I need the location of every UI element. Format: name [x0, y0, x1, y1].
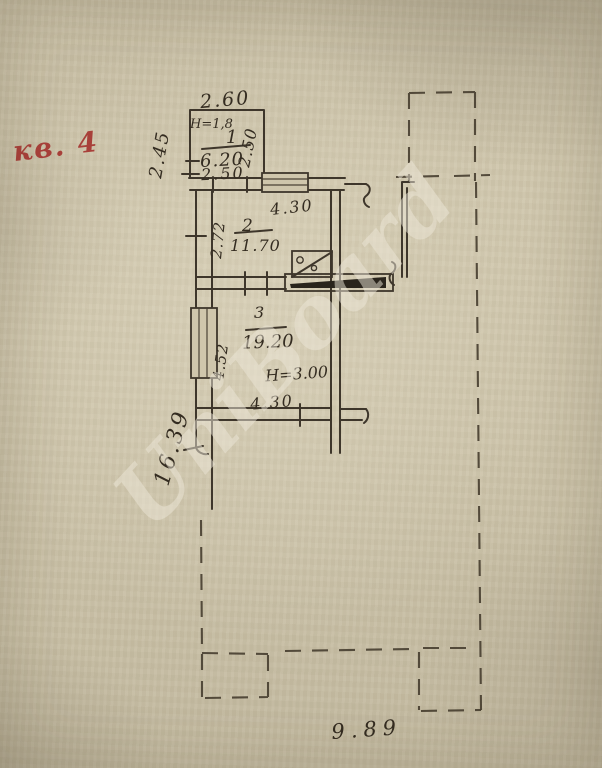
dim-room1-left: 2.45	[145, 129, 174, 181]
dim-bottom-total: 9.89	[331, 715, 403, 744]
dim-room1-bottom: 2.50	[200, 163, 246, 184]
room2-number: 2	[241, 216, 253, 236]
apartment-number-note: кв. 4	[11, 125, 101, 168]
dashed-left-vertical	[201, 520, 202, 654]
window-frame	[262, 173, 308, 192]
wall-bottom-hook	[364, 409, 368, 423]
dim-room2-top: 4.30	[268, 196, 314, 220]
dim-room1-top: 2.60	[198, 87, 251, 113]
room1-number: 1	[226, 127, 237, 148]
dashed-bottom-horizontal	[202, 648, 472, 654]
room2-area: 11.70	[230, 236, 281, 255]
wall-bottom-continuation	[340, 409, 366, 420]
doorway-jambs-rooms-2-3	[245, 272, 267, 295]
floor-plan-document: 2.60 2.45 H=1,8 1 6.20 2.50 2.50 4.30 2.…	[0, 0, 602, 768]
dim-room2-left: 2.72	[207, 220, 229, 260]
window-symbol-kitchen	[262, 173, 308, 192]
dashed-porch-right	[419, 652, 481, 711]
room2-number-underline	[235, 230, 272, 233]
dashed-right-vertical	[476, 182, 481, 710]
dashed-porch-left	[202, 654, 268, 698]
floor-plan-drawing: 2.60 2.45 H=1,8 1 6.20 2.50 2.50 4.30 2.…	[0, 0, 602, 768]
